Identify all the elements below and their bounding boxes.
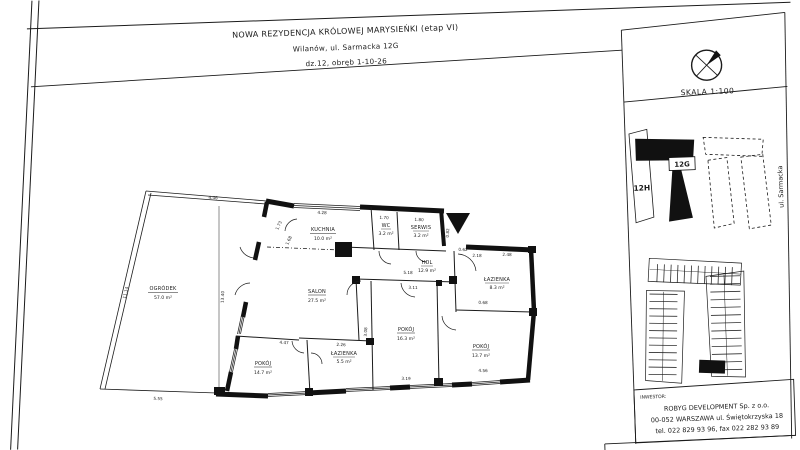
scale-label: SKALA 1:100 xyxy=(681,86,735,97)
svg-text:2.18: 2.18 xyxy=(472,253,482,258)
scanned-floor-plan-sheet: NOWA REZYDENCJA KRÓLOWEJ MARYSIEŃKI (eta… xyxy=(0,0,800,450)
svg-text:WC: WC xyxy=(382,223,391,229)
svg-text:5.5 m²: 5.5 m² xyxy=(336,359,351,365)
svg-text:POKÓJ: POKÓJ xyxy=(255,360,271,367)
svg-text:2.26: 2.26 xyxy=(336,342,346,347)
svg-text:2.48: 2.48 xyxy=(502,252,512,257)
svg-text:12.9 m²: 12.9 m² xyxy=(418,268,436,274)
svg-text:3.19: 3.19 xyxy=(401,376,411,381)
svg-text:3.2 m²: 3.2 m² xyxy=(413,233,428,239)
svg-text:14.7 m²: 14.7 m² xyxy=(254,370,272,376)
svg-text:5.18: 5.18 xyxy=(403,270,413,275)
svg-text:3.2 m²: 3.2 m² xyxy=(378,231,393,237)
building-12g-label: 12G xyxy=(674,160,690,169)
svg-text:4.28: 4.28 xyxy=(317,210,327,215)
svg-text:3.11: 3.11 xyxy=(408,285,418,290)
svg-text:ŁAZIENKA: ŁAZIENKA xyxy=(483,277,511,283)
svg-text:3.08: 3.08 xyxy=(363,327,368,337)
svg-text:13.7 m²: 13.7 m² xyxy=(472,353,490,359)
drawing-canvas: NOWA REZYDENCJA KRÓLOWEJ MARYSIEŃKI (eta… xyxy=(0,0,800,450)
svg-text:13.40: 13.40 xyxy=(220,291,225,303)
svg-text:27.5 m²: 27.5 m² xyxy=(308,298,326,304)
street-label: ul. Sarmacka xyxy=(776,165,785,208)
svg-text:16.3 m²: 16.3 m² xyxy=(397,336,415,342)
svg-text:1.70: 1.70 xyxy=(379,215,389,220)
svg-text:5.55: 5.55 xyxy=(153,396,163,401)
svg-text:0.62: 0.62 xyxy=(458,247,468,252)
svg-text:1.80: 1.80 xyxy=(414,217,424,222)
svg-text:0.82: 0.82 xyxy=(445,228,450,238)
svg-text:57.0 m²: 57.0 m² xyxy=(154,295,172,301)
svg-text:KUCHNIA: KUCHNIA xyxy=(311,227,335,233)
svg-text:POKÓJ: POKÓJ xyxy=(398,326,414,333)
svg-text:ŁAZIENKA: ŁAZIENKA xyxy=(330,351,358,357)
building-12h-label: 12H xyxy=(633,183,650,193)
svg-text:0.68: 0.68 xyxy=(478,300,488,305)
paper-background xyxy=(0,0,800,450)
svg-text:4.46: 4.46 xyxy=(208,195,218,200)
svg-text:SALON: SALON xyxy=(308,289,326,295)
svg-text:SERWIS: SERWIS xyxy=(411,225,431,231)
svg-text:OGRÓDEK: OGRÓDEK xyxy=(150,285,177,292)
highlighted-unit-marker xyxy=(699,360,725,374)
svg-text:10.0 m²: 10.0 m² xyxy=(314,236,332,242)
svg-text:8.3 m²: 8.3 m² xyxy=(489,285,504,291)
svg-text:4.56: 4.56 xyxy=(478,368,488,373)
svg-text:4.47: 4.47 xyxy=(279,340,289,345)
investor-label: INWESTOR: xyxy=(640,394,667,401)
svg-text:HOL: HOL xyxy=(421,260,432,266)
svg-text:POKÓJ: POKÓJ xyxy=(473,343,489,350)
